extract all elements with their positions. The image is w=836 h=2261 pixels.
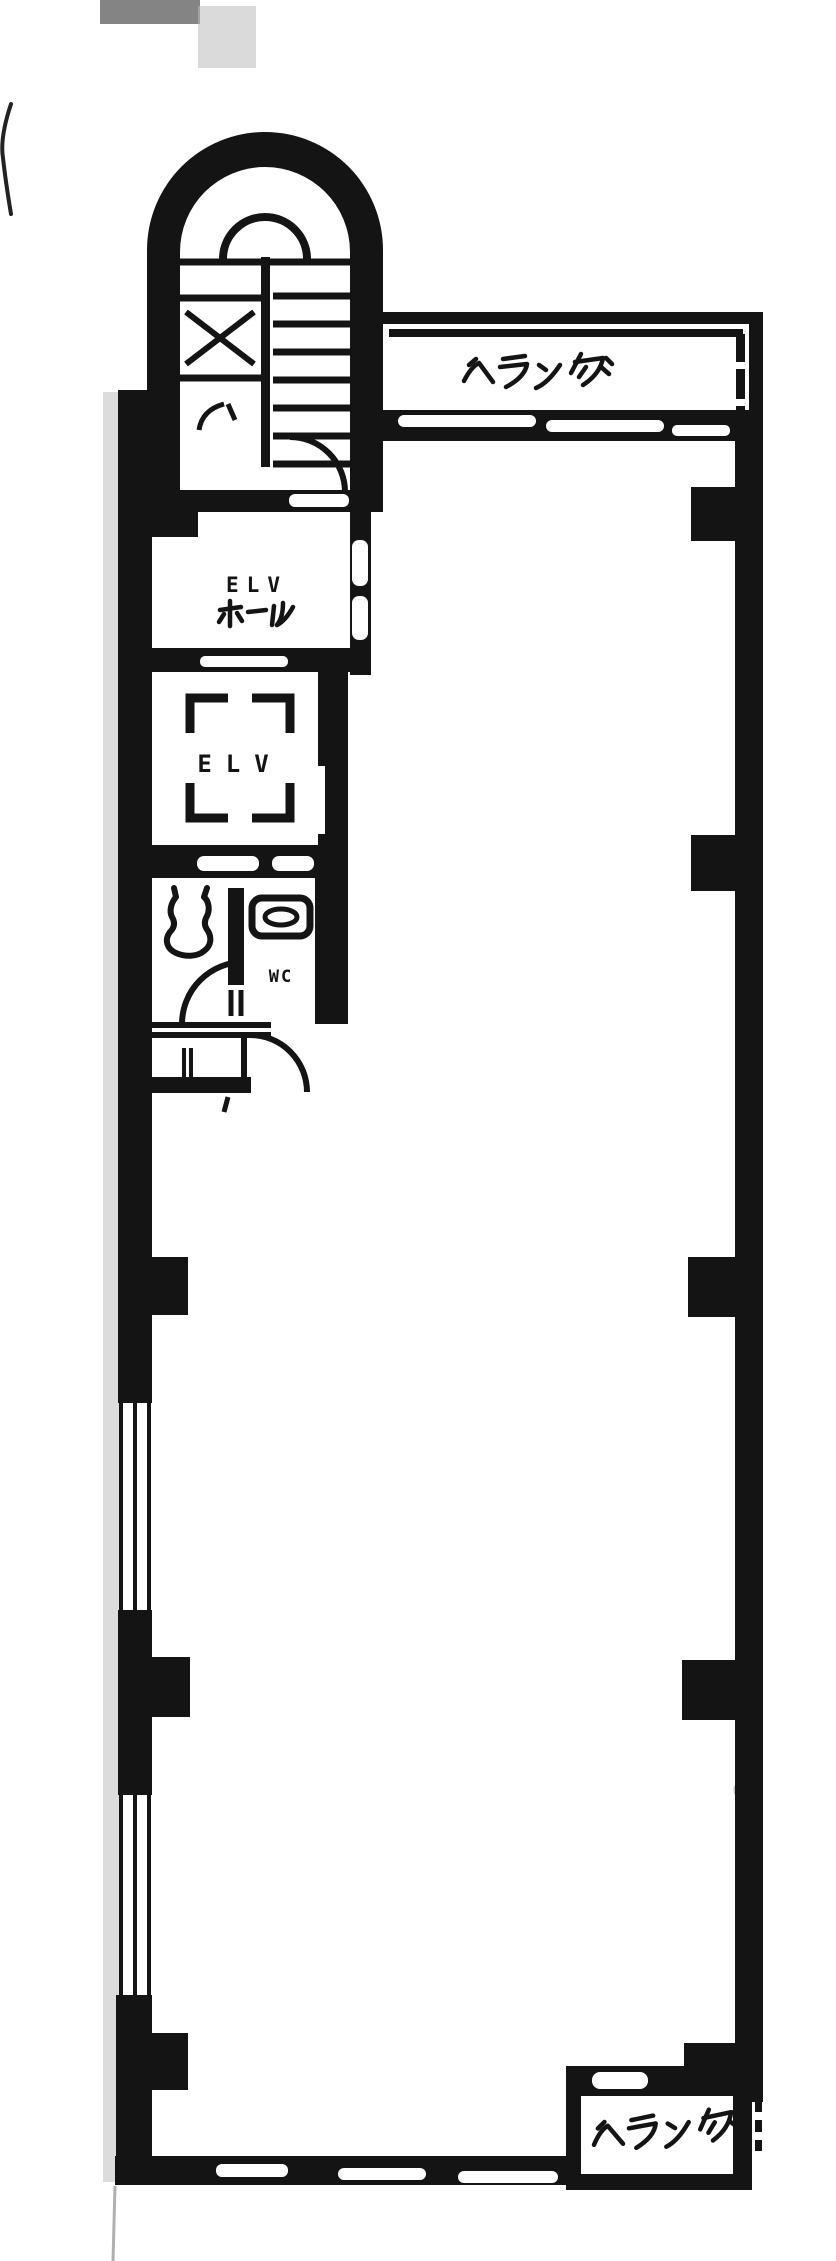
balcony-top-outer-rail [383, 312, 751, 324]
bottom-wall [115, 2156, 577, 2185]
elevator-room: ELV [120, 672, 348, 878]
right-wall-main [735, 440, 763, 2102]
balcony-bottom-right-dashes [755, 2098, 762, 2151]
elevator-hall-door-opening [200, 656, 288, 667]
balcony-bottom: ベランダ [566, 2066, 762, 2190]
vestibule [147, 1022, 307, 1112]
sink-icon [252, 898, 310, 936]
elevator-right-wall-slot [318, 766, 325, 834]
elevator-hall-label-line2: ホール [221, 602, 293, 630]
sink-basin [265, 909, 297, 925]
staircase-tower [147, 132, 383, 512]
wc-right-wall [315, 878, 348, 1024]
left-wall-segment-2 [118, 1610, 152, 1795]
balcony-bottom-label: ベランダ [596, 2120, 724, 2158]
left-wall-window-2 [119, 1795, 151, 1995]
elevator-hall-window-slot-2 [352, 596, 368, 640]
left-wall-pillar-3 [152, 2033, 188, 2090]
left-wall-pillar-2 [152, 1657, 190, 1717]
lobby-door-opening [289, 494, 349, 507]
bottom-window-pane-1 [216, 2164, 288, 2177]
elevator-hall-window-slot-1 [352, 540, 368, 586]
right-wall-pillar-3 [688, 1257, 737, 1317]
balcony-top-label: ベランダ [477, 356, 597, 391]
vestibule-door-arc [250, 1035, 307, 1092]
elevator-hall-label-line1: ELV [226, 573, 288, 597]
floor-plan-page: { "page": { "type": "scanned-floor-plan"… [0, 0, 836, 2261]
balcony-top: ベランダ [353, 312, 763, 441]
scan-shading-left-wall [103, 392, 119, 2182]
left-wall-pillar-1 [152, 1257, 188, 1315]
elevator-door-slot-1 [197, 856, 259, 871]
vestibule-top-line-1 [147, 1022, 271, 1028]
right-wall-pillar-4 [682, 1660, 737, 1720]
bottom-window-pane-3 [458, 2171, 558, 2183]
balcony-bottom-door-slot [592, 2072, 648, 2089]
balcony-window-pane-2 [546, 420, 664, 432]
stair-center-divider [261, 257, 270, 467]
wc-room: WC [167, 878, 348, 1024]
elevator-hall-wall-step [152, 505, 198, 537]
wc-label: WC [269, 967, 293, 987]
scan-smudge-top-light [198, 6, 256, 68]
scan-smudge-top [100, 0, 200, 24]
scan-line-bottom-left [113, 2186, 115, 2261]
bottom-window-pane-2 [338, 2168, 426, 2180]
balcony-window-pane-3 [672, 425, 730, 436]
balcony-top-inner-rail [389, 329, 743, 337]
vestibule-tick-below [224, 1097, 228, 1112]
elevator-door-slot-2 [272, 856, 314, 871]
right-wall-pillar-2 [691, 835, 737, 891]
right-wall [682, 440, 763, 2102]
floor-plan-drawing: ベランダ ELV ホール ELV [0, 0, 836, 2261]
scan-mark-left-edge [2, 104, 11, 214]
vestibule-bottom-wall [147, 1077, 251, 1093]
balcony-window-pane-1 [398, 415, 536, 427]
toilet-icon [167, 888, 210, 956]
left-wall-window-1 [119, 1403, 151, 1610]
wc-partition-wall [228, 888, 244, 985]
elevator-label: ELV [197, 750, 282, 778]
right-wall-pillar-1 [691, 487, 737, 541]
left-outer-wall-upper [118, 390, 152, 1403]
